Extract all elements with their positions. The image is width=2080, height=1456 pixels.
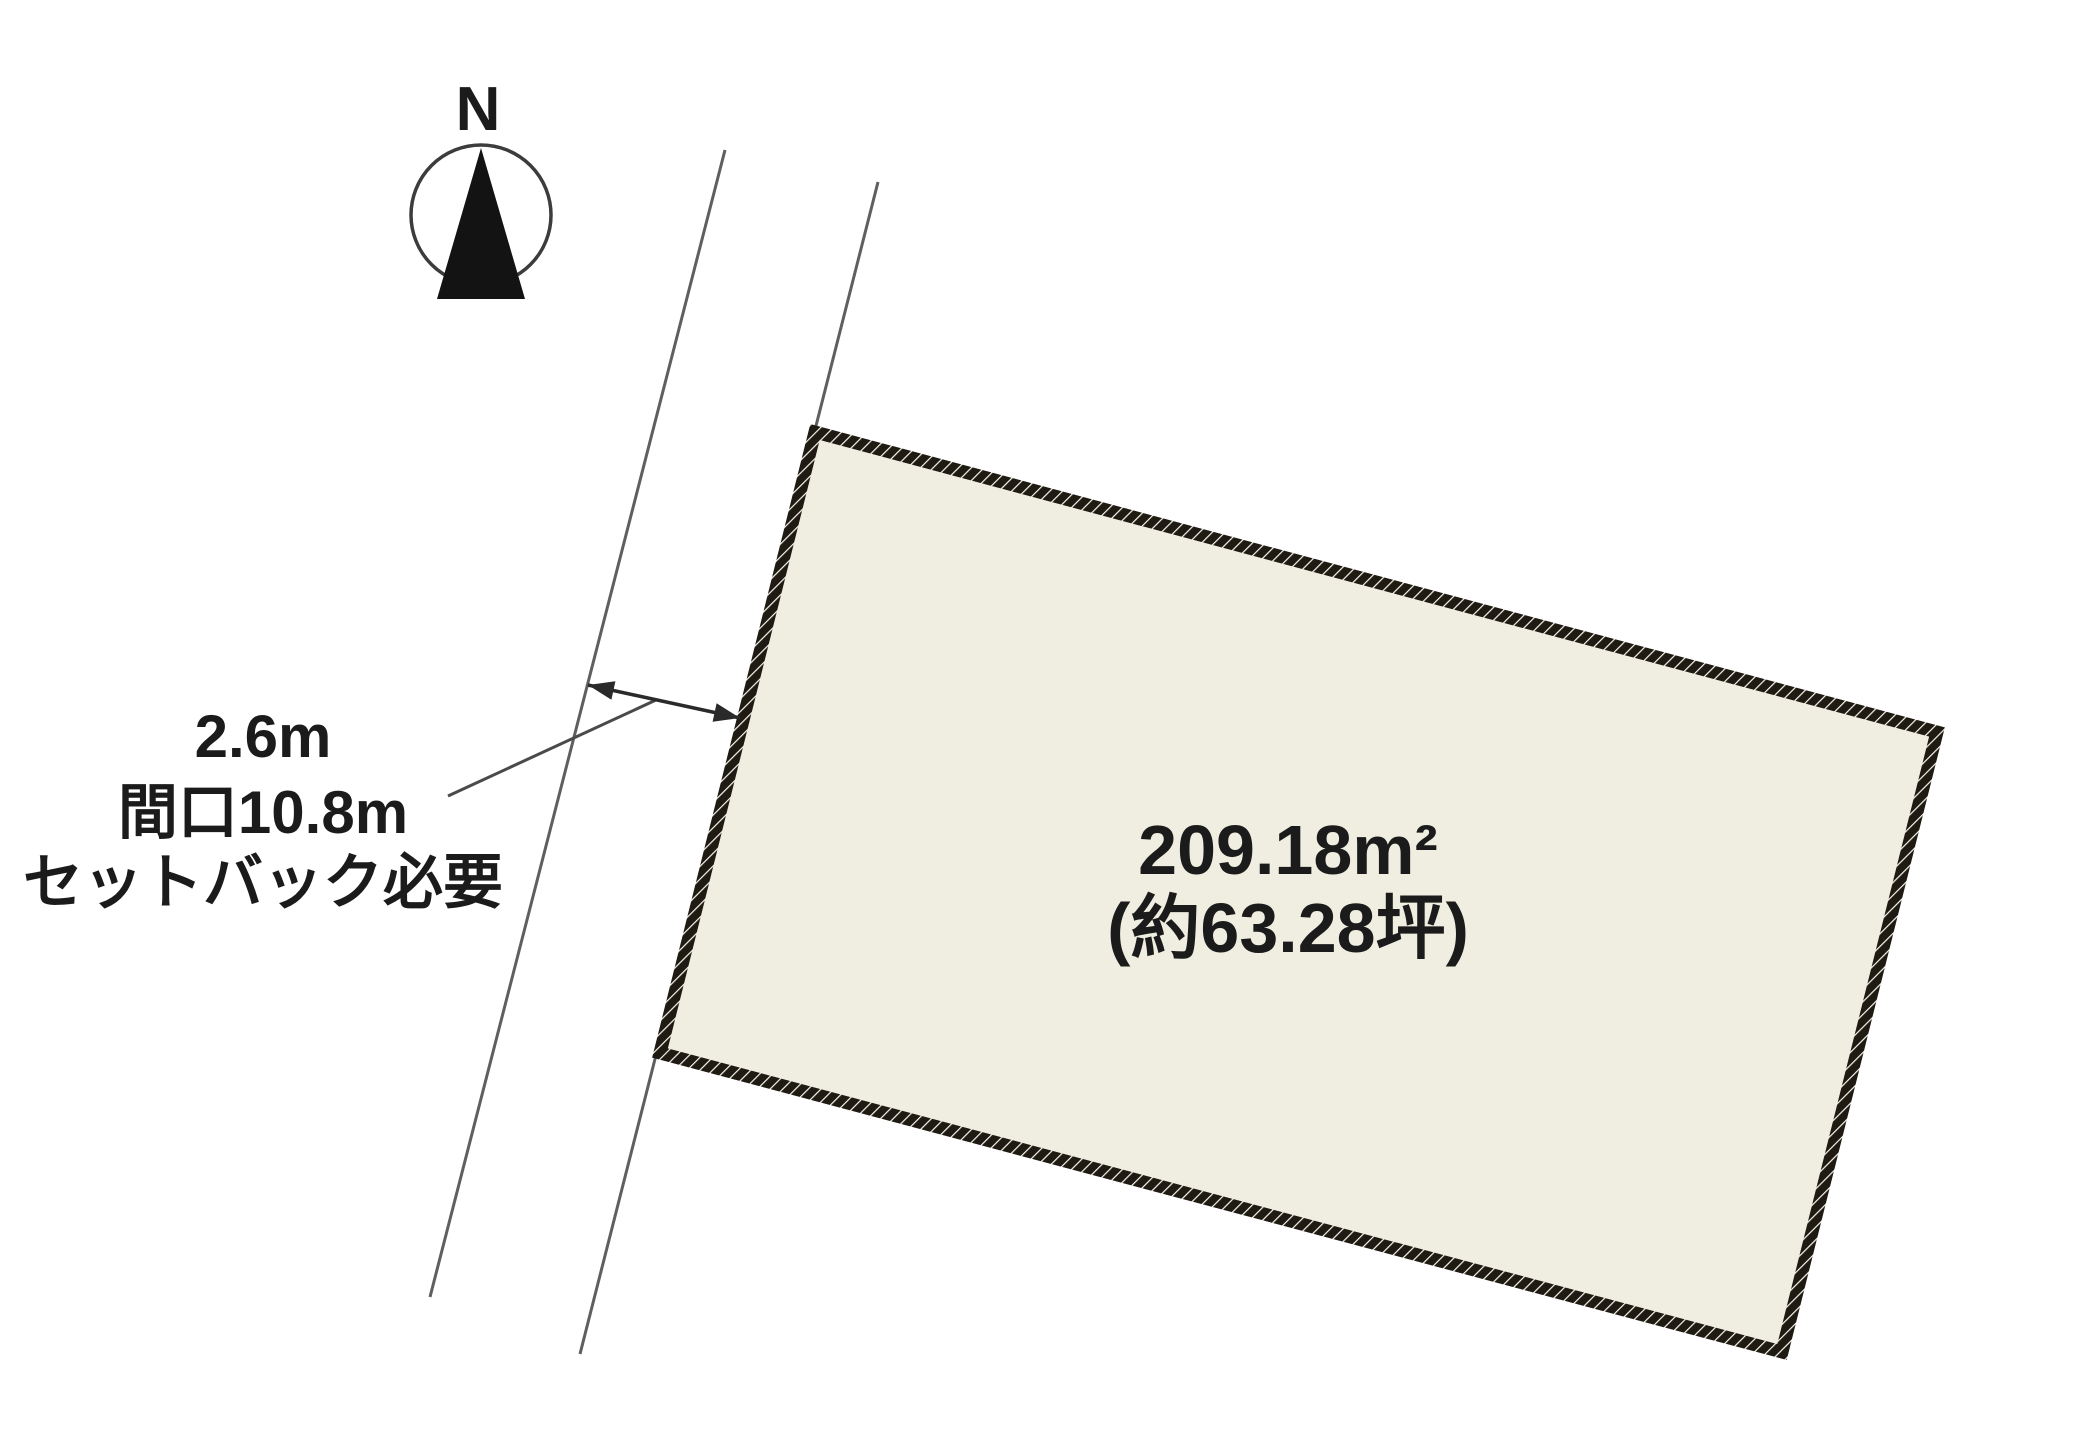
site-plan-canvas: N 2.6m 間口10.8m セットバック必要 209.18m² (約63.28… xyxy=(0,0,2080,1456)
parcel-area-tsubo-label: (約63.28坪) xyxy=(1107,889,1469,967)
plot-diagram-svg: N 2.6m 間口10.8m セットバック必要 209.18m² (約63.28… xyxy=(0,0,2080,1456)
compass-icon: N xyxy=(411,75,551,299)
parcel-area-m2-label: 209.18m² xyxy=(1138,811,1438,889)
road-width-label: 2.6m xyxy=(195,703,332,770)
leader-line xyxy=(448,700,656,796)
setback-label: セットバック必要 xyxy=(23,849,503,916)
frontage-label: 間口10.8m xyxy=(118,779,408,846)
north-label: N xyxy=(456,75,501,144)
arrowhead-right-icon xyxy=(713,703,740,722)
road-edge-line-left xyxy=(430,150,725,1297)
arrowhead-left-icon xyxy=(588,681,615,700)
